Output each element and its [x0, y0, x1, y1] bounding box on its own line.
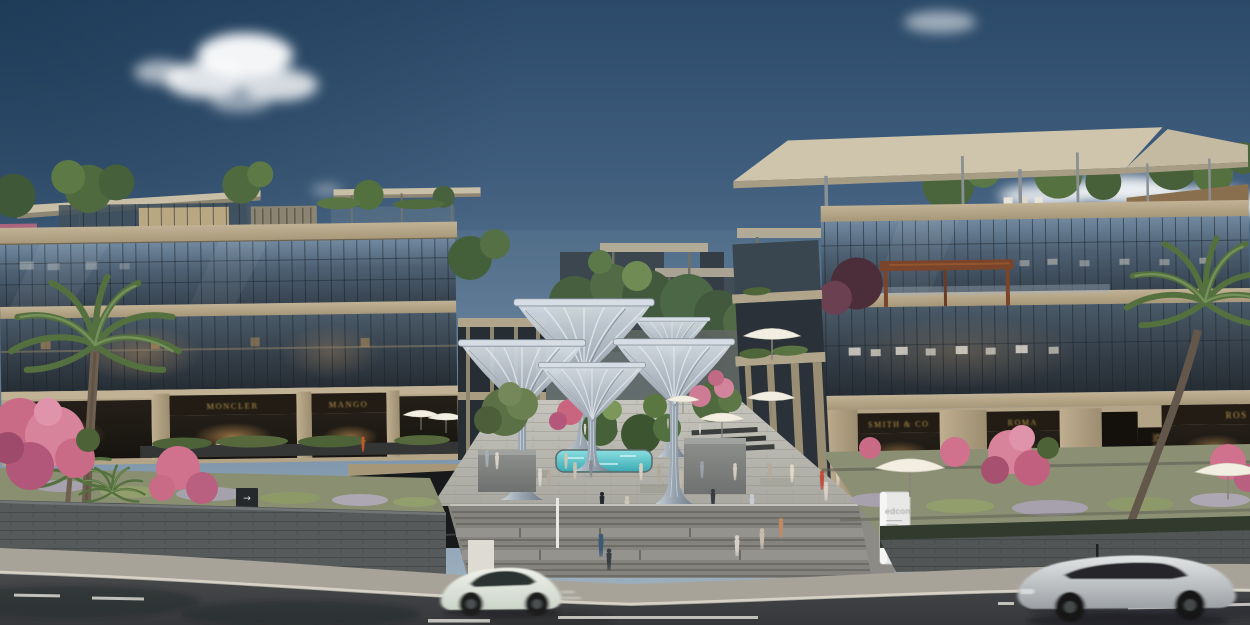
grand-steps — [448, 498, 896, 580]
architectural-render: MONCLER MANGO — [0, 0, 1250, 625]
store-sign-right-1: SMITH & CO — [868, 419, 929, 429]
store-sign-left-1: MONCLER — [206, 400, 258, 411]
monolith-brand-text: edcon — [885, 506, 911, 516]
white-post — [556, 498, 559, 548]
store-sign-left-2: MANGO — [329, 399, 369, 410]
pylon-arrow: → — [243, 494, 251, 504]
store-sign-right-3: ROS — [1226, 410, 1248, 420]
